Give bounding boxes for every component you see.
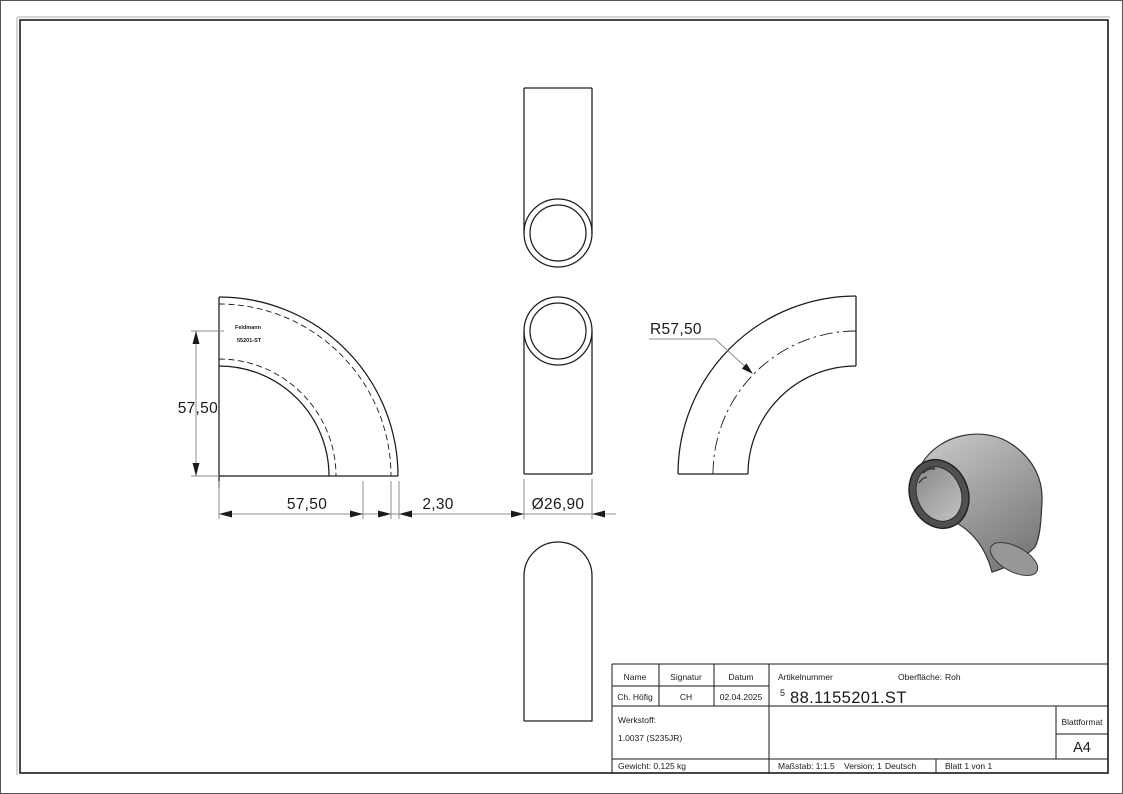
- name-value: Ch. Höfig: [617, 692, 653, 702]
- scale-value: Maßstab: 1:1.5: [778, 761, 835, 771]
- drawing-sheet: Feldmann 55201-ST 57,50 57,50 2,30: [0, 0, 1123, 794]
- name-label: Name: [624, 672, 647, 682]
- top-view-tube: [524, 88, 592, 267]
- dimension-bend-radius: R57,50: [649, 321, 753, 374]
- side-view-bend: [678, 296, 856, 474]
- drawing-canvas: Feldmann 55201-ST 57,50 57,50 2,30: [1, 1, 1123, 794]
- article-number-prefix: 5: [780, 688, 785, 698]
- material-value: 1.0037 (S235JR): [618, 733, 682, 743]
- date-label: Datum: [728, 672, 753, 682]
- signature-label: Signatur: [670, 672, 702, 682]
- sheet-number-value: Blatt 1 von 1: [945, 761, 993, 771]
- part-stamp: Feldmann 55201-ST: [235, 325, 262, 344]
- isometric-view-elbow: [899, 434, 1043, 582]
- surface-value: Roh: [945, 672, 961, 682]
- front-view-elbow: Feldmann 55201-ST: [219, 297, 398, 488]
- stamp-line2: 55201-ST: [237, 338, 262, 344]
- dim-bend-radius-text: R57,50: [650, 321, 702, 338]
- weight-value: Gewicht: 0.125 kg: [618, 761, 686, 771]
- title-block: Name Signatur Datum Artikelnummer Oberfl…: [612, 664, 1108, 773]
- sheet-frame: [17, 17, 1110, 775]
- date-value: 02.04.2025: [720, 692, 763, 702]
- bottom-view-tube: [524, 542, 592, 721]
- dim-height-text: 57,50: [178, 400, 218, 417]
- dim-wall-text: 2,30: [422, 496, 453, 513]
- dim-radius-text: 57,50: [287, 496, 327, 513]
- article-number-label: Artikelnummer: [778, 672, 833, 682]
- middle-view-tube: [524, 297, 592, 474]
- sheet-format-label: Blattformat: [1061, 717, 1103, 727]
- dim-diameter-text: Ø26,90: [532, 496, 585, 513]
- article-number: 88.1155201.ST: [790, 689, 907, 707]
- surface-label: Oberfläche:: [898, 672, 942, 682]
- stamp-line1: Feldmann: [235, 325, 262, 331]
- dimension-diameter: Ø26,90: [469, 479, 616, 519]
- material-label: Werkstoff:: [618, 715, 656, 725]
- version-value: Version: 1: [844, 761, 882, 771]
- dimension-radius-and-wall: 57,50 2,30: [219, 481, 469, 519]
- dimension-height: 57,50: [178, 331, 224, 476]
- signature-value: CH: [680, 692, 692, 702]
- language-value: Deutsch: [885, 761, 916, 771]
- sheet-format-value: A4: [1073, 740, 1091, 756]
